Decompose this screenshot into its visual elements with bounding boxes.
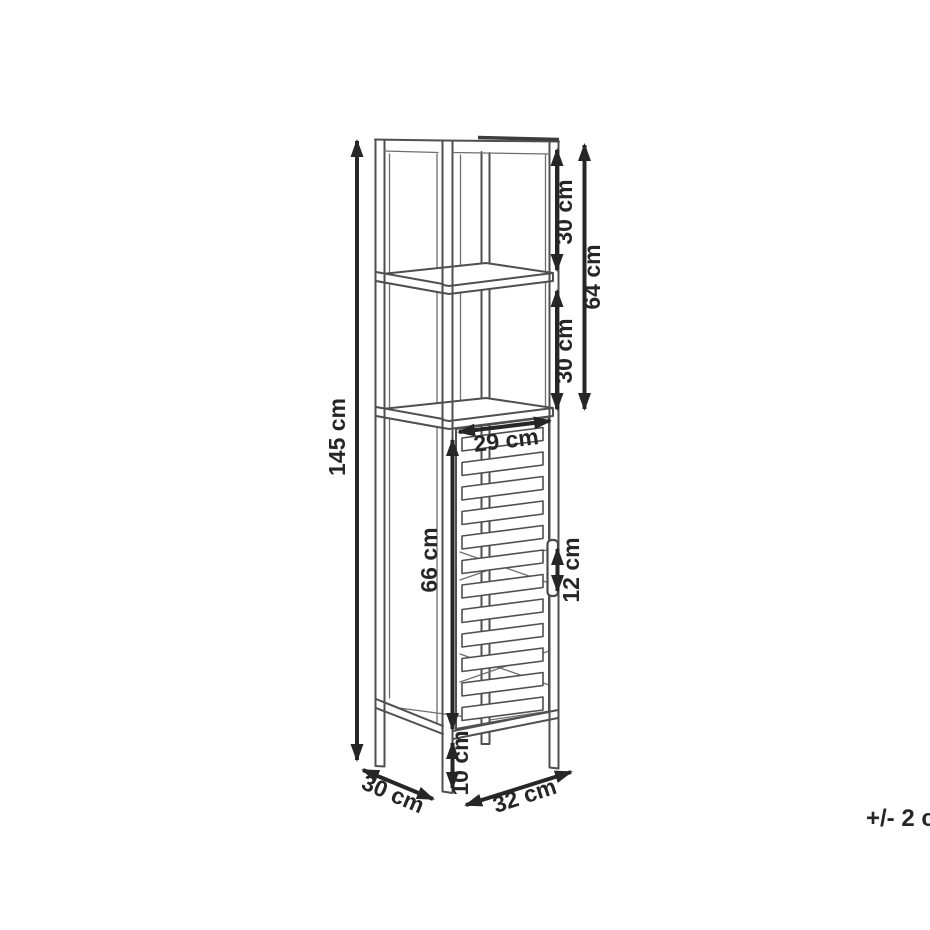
door-slat	[462, 501, 543, 525]
dimension-label-handle: 12 cm	[558, 537, 584, 602]
top-beams-inner	[384, 151, 550, 154]
door-slat	[462, 477, 543, 501]
dimension-label-depth: 30 cm	[358, 769, 428, 818]
dimension-label-legs: 10 cm	[447, 730, 473, 795]
slatted-door	[456, 417, 549, 729]
dimension-top-section: 30 cm	[551, 150, 577, 270]
dimension-second-section: 30 cm	[551, 291, 577, 409]
dimension-label-door-height: 66 cm	[416, 527, 442, 592]
left-panel-inset-lines	[390, 154, 438, 724]
tolerance-note: +/- 2 cm	[866, 805, 930, 832]
dimension-depth: 30 cm	[358, 769, 433, 818]
cabinet-line-drawing: 145 cm 30 cm 64 cm 30 cm 29 cm 66 cm 12 …	[0, 0, 930, 930]
door-slat	[462, 599, 543, 623]
furniture-dimension-diagram: 145 cm 30 cm 64 cm 30 cm 29 cm 66 cm 12 …	[0, 0, 930, 930]
door-slat	[462, 648, 543, 672]
door-slat	[462, 550, 543, 574]
dimension-label-width: 32 cm	[489, 773, 559, 818]
top-back-beam	[478, 138, 559, 140]
door-slat	[462, 624, 543, 648]
dimension-upper-sections: 64 cm	[579, 145, 605, 409]
dimension-label-second-section: 30 cm	[551, 318, 577, 383]
door-slat	[462, 526, 543, 550]
dimension-label-total-height: 145 cm	[324, 398, 350, 476]
dimension-legs: 10 cm	[447, 730, 473, 795]
dimension-label-top-section: 30 cm	[551, 179, 577, 244]
dimension-width: 32 cm	[466, 772, 571, 818]
door-slat	[462, 575, 543, 599]
dimension-handle: 12 cm	[558, 537, 585, 602]
door-slat	[462, 673, 543, 697]
dimension-door-height: 66 cm	[416, 440, 453, 729]
back-left-post	[376, 140, 385, 767]
dimension-label-upper-sections: 64 cm	[579, 244, 605, 309]
dimension-total-height: 145 cm	[324, 141, 357, 760]
